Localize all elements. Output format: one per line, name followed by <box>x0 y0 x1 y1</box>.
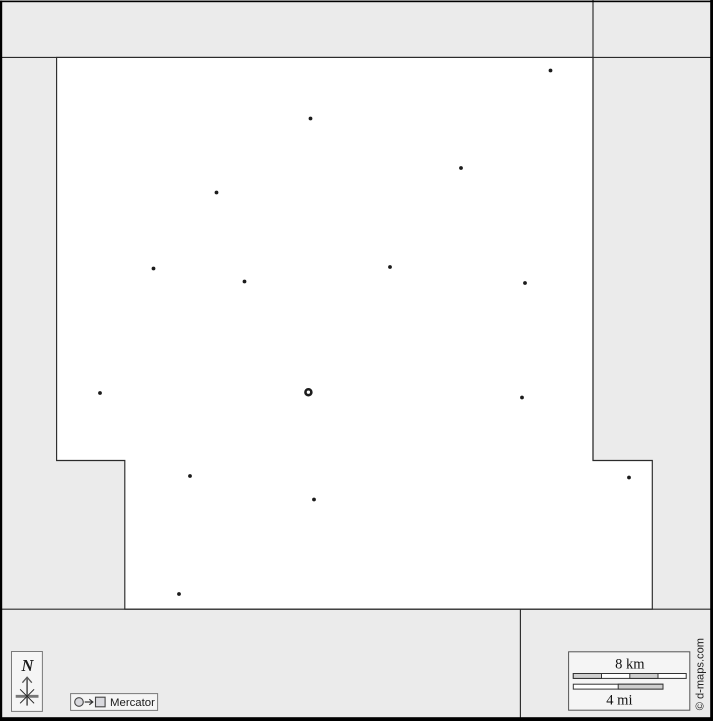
svg-text:8 km: 8 km <box>615 656 645 672</box>
svg-text:Mercator: Mercator <box>110 697 155 709</box>
svg-text:© d-maps.com: © d-maps.com <box>694 638 706 710</box>
svg-text:N: N <box>21 656 35 675</box>
svg-text:4 mi: 4 mi <box>606 693 632 709</box>
